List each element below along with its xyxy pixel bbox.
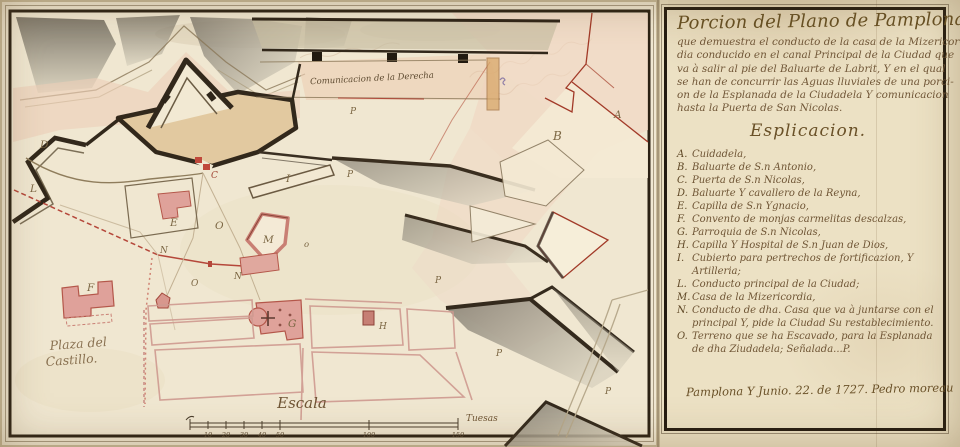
legend-key: F.: [677, 213, 692, 226]
legend-label: Conducto de dha. Casa que va à juntarse …: [692, 304, 939, 330]
gate-c-mark: [195, 157, 202, 163]
scale-tick-label: 20: [221, 431, 230, 439]
scale-tick-label: 100: [363, 431, 375, 439]
map-letter-P: P: [349, 107, 357, 117]
scale-tick-label: 50: [276, 431, 284, 439]
legend-key: E.: [677, 200, 692, 213]
legend-label: Baluarte Y cavallero de la Reyna,: [692, 187, 939, 200]
scale-tick-label: 150: [452, 431, 464, 439]
legend-item: F.Convento de monjas carmelitas descalza…: [677, 213, 939, 226]
map-letter-F: F: [86, 282, 95, 294]
legend-key: I.: [677, 252, 692, 278]
legend-item: G.Parroquia de S.n Nicolas,: [677, 226, 939, 239]
legend-label: Conducto principal de la Ciudad;: [692, 278, 939, 291]
map-panel: Comunicacion de la Derecha Plaza del Cas…: [0, 0, 660, 447]
embrasure: [458, 54, 468, 63]
legend-item: A.Cuidadela,: [677, 148, 939, 161]
legend-item: D.Baluarte Y cavallero de la Reyna,: [677, 187, 939, 200]
legend-label: Capilla de S.n Ygnacio,: [692, 200, 939, 213]
scale-title: Escala: [276, 394, 327, 412]
map-letter-I: I: [285, 173, 291, 185]
map-letter-O: O: [215, 220, 224, 232]
legend-key: H.: [677, 239, 692, 252]
legend-item: E.Capilla de S.n Ygnacio,: [677, 200, 939, 213]
legend-key: N.: [677, 304, 692, 330]
legend-key: M.: [677, 291, 692, 304]
panel-subtitle: que demuestra el conducto de la casa de …: [677, 36, 939, 116]
explanation-heading: Esplicacion.: [677, 121, 939, 141]
scale-tick-label: 40: [257, 431, 266, 439]
panel-title: Porcion del Plano de Pamplona: [677, 9, 939, 34]
legend-item: O.Terreno que se ha Escavado, para la Es…: [677, 330, 939, 356]
scale-tick-label: 10: [204, 431, 212, 439]
legend-item: L.Conducto principal de la Ciudad;: [677, 278, 939, 291]
manuscript-page: Comunicacion de la Derecha Plaza del Cas…: [0, 0, 960, 447]
building-h: [363, 311, 374, 325]
legend-list: A.Cuidadela, B.Baluarte de S.n Antonio, …: [677, 148, 939, 356]
subtitle-line: que demuestra el conducto de la casa de …: [677, 36, 939, 49]
map-letter-H: H: [378, 322, 387, 332]
subtitle-line: dia conducido en el canal Principal de l…: [677, 49, 939, 62]
map-drawing: Comunicacion de la Derecha Plaza del Cas…: [0, 0, 660, 447]
legend-label: Capilla Y Hospital de S.n Juan de Dios,: [692, 239, 939, 252]
map-letter-P: P: [495, 349, 503, 359]
legend-key: C.: [677, 174, 692, 187]
legend-label: Casa de la Mizericordia,: [692, 291, 939, 304]
map-letter-B: B: [552, 129, 562, 143]
legend-key: L.: [677, 278, 692, 291]
legend-label: Cuidadela,: [692, 148, 939, 161]
embrasure: [312, 52, 322, 61]
map-letter-D: D: [39, 139, 49, 151]
map-letter-G: G: [288, 318, 296, 330]
legend-label: Baluarte de S.n Antonio,: [692, 161, 939, 174]
legend-content: Porcion del Plano de Pamplona que demues…: [677, 11, 939, 356]
legend-key: D.: [677, 187, 692, 200]
legend-item: H.Capilla Y Hospital de S.n Juan de Dios…: [677, 239, 939, 252]
legend-key: B.: [677, 161, 692, 174]
sheet-fold-seam: [657, 0, 659, 447]
legend-key: A.: [677, 148, 692, 161]
map-letter-M: M: [262, 234, 274, 246]
map-letter-N: N: [233, 272, 243, 282]
legend-label: Puerta de S.n Nicolas,: [692, 174, 939, 187]
map-letter-P: P: [346, 170, 354, 180]
legend-label: Convento de monjas carmelitas descalzas,: [692, 213, 939, 226]
map-letter-O: O: [191, 279, 199, 289]
citadel-ramp: [487, 58, 499, 110]
scale-unit: Tuesas: [466, 414, 498, 424]
legend-item: N.Conducto de dha. Casa que va à juntars…: [677, 304, 939, 330]
legend-item: I.Cubierto para pertrechos de fortificaz…: [677, 252, 939, 278]
subtitle-line: hasta la Puerta de San Nicolas.: [677, 102, 939, 115]
legend-panel: Porcion del Plano de Pamplona que demues…: [660, 0, 960, 447]
subtitle-line: se han de concurrir las Aguas lluviales …: [677, 76, 939, 89]
legend-item: B.Baluarte de S.n Antonio,: [677, 161, 939, 174]
subtitle-line: on de la Esplanada de la Ciudadela Y com…: [677, 89, 939, 102]
legend-label: Terreno que se ha Escavado, para la Espl…: [692, 330, 939, 356]
subtitle-line: va à salir al pie del Baluarte de Labrit…: [677, 63, 939, 76]
map-letter-N: N: [159, 246, 169, 256]
legend-label: Cubierto para pertrechos de fortificazio…: [692, 252, 939, 278]
map-letter-L: L: [29, 183, 37, 195]
legend-label: Parroquia de S.n Nicolas,: [692, 226, 939, 239]
legend-item: C.Puerta de S.n Nicolas,: [677, 174, 939, 187]
map-letter-P: P: [604, 387, 612, 397]
map-letter-A: A: [613, 109, 622, 121]
legend-key: G.: [677, 226, 692, 239]
scale-tick-label: 30: [240, 431, 248, 439]
legend-item: M.Casa de la Mizericordia,: [677, 291, 939, 304]
legend-key: O.: [677, 330, 692, 356]
map-letter-E: E: [169, 217, 178, 229]
map-letter-C: C: [211, 171, 218, 181]
map-letter-O: o: [304, 240, 309, 250]
map-letter-P: P: [434, 276, 442, 286]
